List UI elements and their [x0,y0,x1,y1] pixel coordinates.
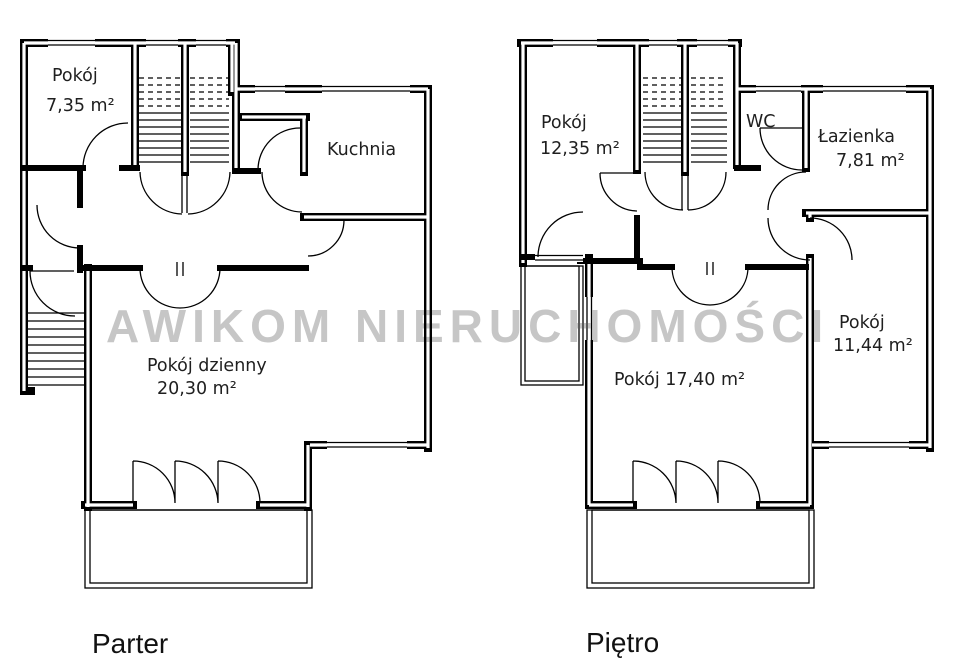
pietro-room-pokoj1740-label: Pokój 17,40 m² [614,370,745,390]
parter-room-kuchnia-label: Kuchnia [327,140,396,160]
pietro-room-pokoj1235-label: Pokój [541,113,587,133]
agency-watermark: AWIKOM NIERUCHOMOŚCI [106,303,829,349]
pietro-room-pokoj1235-area: 12,35 m² [540,139,620,159]
pietro-room-lazienka-label: Łazienka [817,127,895,147]
pietro-balcony-bottom [587,510,814,588]
parter-room-pokoj-area: 7,35 m² [46,96,115,116]
floorplan-page: Pokój 7,35 m² Kuchnia Pokój dzienny 20,3… [0,0,972,672]
pietro-floor-label: Piętro [586,627,659,658]
pietro-room-lazienka-area: 7,81 m² [836,151,905,171]
parter-room-pokoj-label: Pokój [52,66,98,86]
parter-room-dzienny-area: 20,30 m² [157,379,237,399]
pietro-room-pokoj1144-label: Pokój [839,313,885,333]
pietro-room-wc-label: WC [746,112,776,132]
pietro-room-pokoj1144-area: 11,44 m² [833,336,913,356]
parter-floor-label: Parter [92,628,168,659]
pietro-walls-interior [523,168,806,267]
parter-entrance-steps [27,313,85,385]
parter-room-dzienny-label: Pokój dzienny [147,356,267,376]
parter-terrace [85,510,312,588]
